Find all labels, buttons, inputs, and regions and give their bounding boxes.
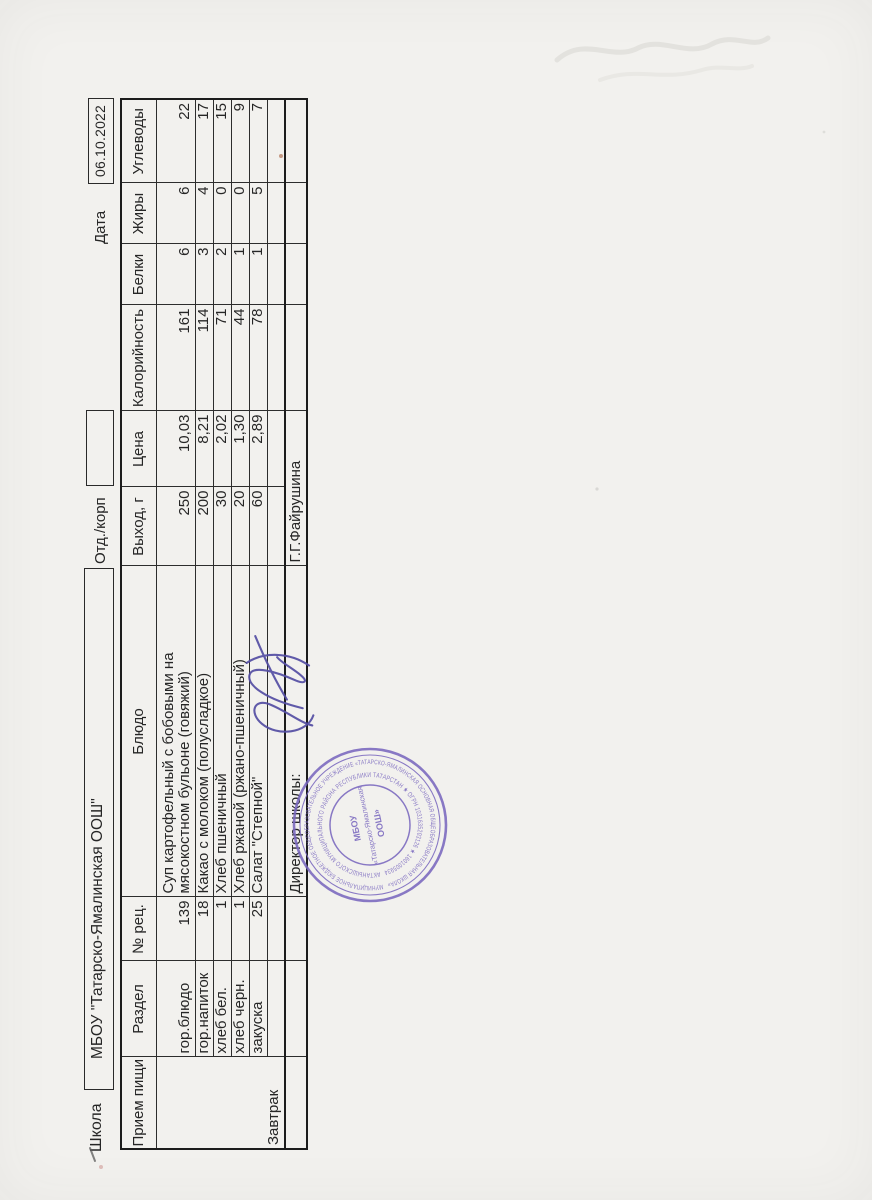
cell-price: 2,89 xyxy=(250,411,268,487)
cell-protein: 6 xyxy=(157,244,196,305)
cell-recipe-no: 1 xyxy=(214,897,232,961)
cell-fat: 5 xyxy=(250,183,268,244)
cell-section: хлеб бел. xyxy=(214,961,232,1057)
cell-protein: 1 xyxy=(232,244,250,305)
cell-fat: 6 xyxy=(157,183,196,244)
cell-recipe-no: 25 xyxy=(250,897,268,961)
cell-protein: 1 xyxy=(250,244,268,305)
table-row: хлеб бел. 1 Хлеб пшеничный 30 2,02 71 2 … xyxy=(214,99,232,1149)
school-label: Школа xyxy=(88,1103,106,1152)
cell-empty xyxy=(268,897,286,961)
table-row: Завтрак гор.блюдо 139 Суп картофельный с… xyxy=(157,99,196,1149)
cell-empty xyxy=(285,99,307,183)
dept-value-box xyxy=(86,410,114,486)
cell-kcal: 161 xyxy=(157,305,196,411)
cell-price: 1,30 xyxy=(232,411,250,487)
scanned-document-page: Школа МБОУ "Татарско-Ямалинская ООШ" Отд… xyxy=(0,0,872,1200)
dept-label: Отд./корп xyxy=(92,497,109,564)
cell-carbs: 7 xyxy=(250,99,268,183)
cell-empty xyxy=(285,244,307,305)
school-stamp: МУНИЦИПАЛЬНОЕ БЮДЖЕТНОЕ ОБЩЕОБРАЗОВАТЕЛЬ… xyxy=(273,728,468,923)
cell-recipe-no: 139 xyxy=(157,897,196,961)
cell-output: 250 xyxy=(157,487,196,566)
cell-price: 2,02 xyxy=(214,411,232,487)
col-header-meal: Прием пищи xyxy=(121,1057,157,1149)
cell-empty xyxy=(268,411,286,487)
cell-carbs: 15 xyxy=(214,99,232,183)
director-name: Г.Г.Файрушина xyxy=(285,411,307,566)
cell-empty xyxy=(285,1057,307,1149)
col-header-recipe-no: № рец. xyxy=(121,897,157,961)
col-header-carbs: Углеводы xyxy=(121,99,157,183)
cell-empty xyxy=(285,961,307,1057)
col-header-dish: Блюдо xyxy=(121,566,157,897)
col-header-output: Выход, г xyxy=(121,487,157,566)
cell-empty xyxy=(285,183,307,244)
cell-price: 8,21 xyxy=(196,411,214,487)
cell-empty xyxy=(268,99,286,183)
col-header-price: Цена xyxy=(121,411,157,487)
cell-section: закуска xyxy=(250,961,268,1057)
cell-kcal: 78 xyxy=(250,305,268,411)
header-row: Прием пищи Раздел № рец. Блюдо Выход, г … xyxy=(121,99,157,1149)
cell-protein: 2 xyxy=(214,244,232,305)
date-value: 06.10.2022 xyxy=(92,105,108,177)
cell-fat: 0 xyxy=(214,183,232,244)
cell-kcal: 114 xyxy=(196,305,214,411)
col-header-kcal: Калорийность xyxy=(121,305,157,411)
cell-section: гор.напиток xyxy=(196,961,214,1057)
cell-kcal: 71 xyxy=(214,305,232,411)
col-header-section: Раздел xyxy=(121,961,157,1057)
cell-output: 30 xyxy=(214,487,232,566)
cell-section: хлеб черн. xyxy=(232,961,250,1057)
meal-cell: Завтрак xyxy=(157,1057,286,1149)
school-name-value: МБОУ "Татарско-Ямалинская ООШ" xyxy=(85,569,111,1089)
cell-empty xyxy=(268,305,286,411)
cell-section: гор.блюдо xyxy=(157,961,196,1057)
cell-dish: Какао с молоком (полусладкое) xyxy=(196,566,214,897)
cell-empty xyxy=(268,487,286,566)
cell-output: 20 xyxy=(232,487,250,566)
cell-empty xyxy=(285,305,307,411)
cell-recipe-no: 1 xyxy=(232,897,250,961)
cell-carbs: 17 xyxy=(196,99,214,183)
cell-recipe-no: 18 xyxy=(196,897,214,961)
cell-empty xyxy=(268,183,286,244)
cell-price: 10,03 xyxy=(157,411,196,487)
cell-dish: Суп картофельный с бобовыми на мясокостн… xyxy=(157,566,196,897)
document-sheet: Школа МБОУ "Татарско-Ямалинская ООШ" Отд… xyxy=(0,0,872,1200)
cell-empty xyxy=(268,244,286,305)
cell-empty xyxy=(268,961,286,1057)
cell-fat: 0 xyxy=(232,183,250,244)
school-name-box: МБОУ "Татарско-Ямалинская ООШ" xyxy=(84,568,114,1090)
table-row: гор.напиток 18 Какао с молоком (полуслад… xyxy=(196,99,214,1149)
date-value-box: 06.10.2022 xyxy=(88,98,114,184)
date-label: Дата xyxy=(92,211,109,244)
cell-output: 200 xyxy=(196,487,214,566)
cell-output: 60 xyxy=(250,487,268,566)
cell-fat: 4 xyxy=(196,183,214,244)
col-header-protein: Белки xyxy=(121,244,157,305)
director-signature xyxy=(232,605,330,752)
cell-carbs: 9 xyxy=(232,99,250,183)
cell-carbs: 22 xyxy=(157,99,196,183)
cell-dish: Хлеб пшеничный xyxy=(214,566,232,897)
cell-protein: 3 xyxy=(196,244,214,305)
col-header-fat: Жиры xyxy=(121,183,157,244)
cell-kcal: 44 xyxy=(232,305,250,411)
